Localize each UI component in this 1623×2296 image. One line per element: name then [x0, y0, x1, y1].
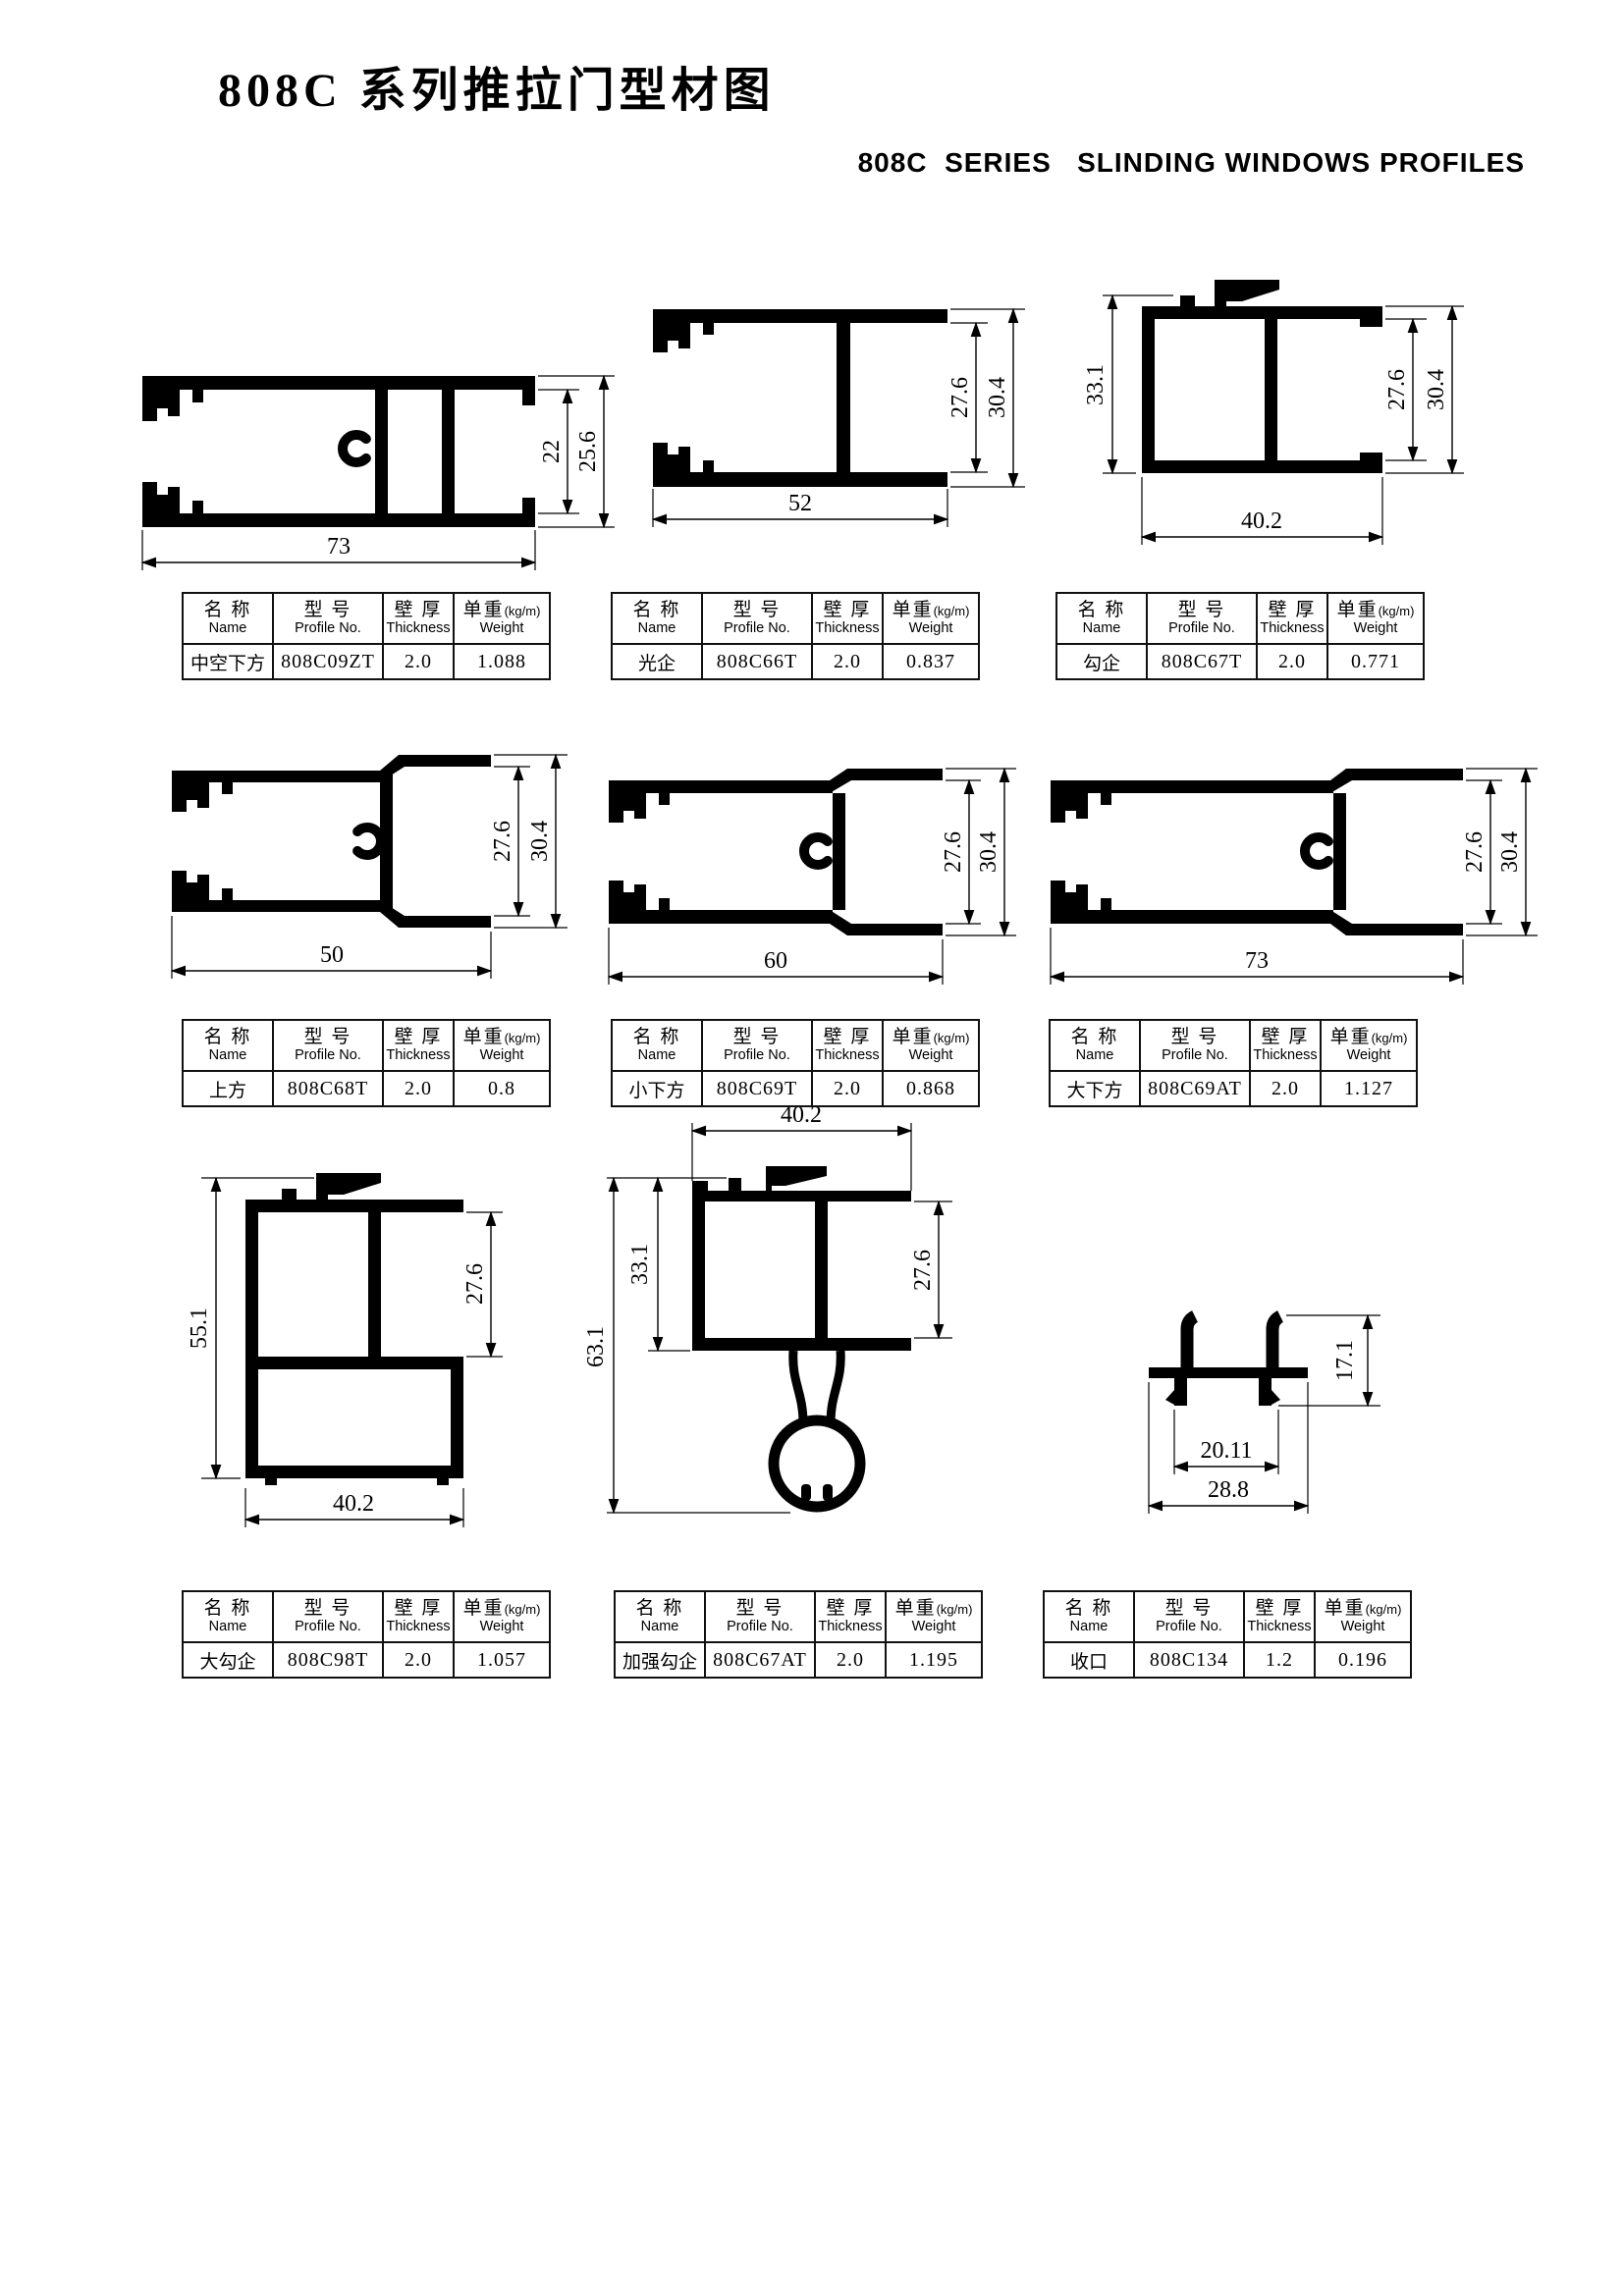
dim-width: 73 — [1245, 948, 1269, 974]
stem-wall-left — [793, 1351, 803, 1423]
header-weight: 单重(kg/m)Weight — [454, 1020, 550, 1071]
header-thickness: 壁 厚Thickness — [1257, 593, 1327, 644]
cell-name: 光企 — [612, 644, 702, 679]
dim-inner-height: 22 — [539, 440, 565, 463]
table-header-row: 名 称Name 型 号Profile No. 壁 厚Thickness 单重(k… — [1056, 593, 1424, 644]
cell-weight: 1.057 — [454, 1642, 550, 1678]
spec-table-808C67T: 名 称Name 型 号Profile No. 壁 厚Thickness 单重(k… — [1055, 592, 1425, 680]
header-name: 名 称Name — [615, 1591, 705, 1642]
header-thickness: 壁 厚Thickness — [383, 1591, 454, 1642]
header-name: 名 称Name — [183, 1591, 273, 1642]
header-name: 名 称Name — [612, 593, 702, 644]
profile-drawing-808C69AT: 73 27.6 30.4 — [1031, 741, 1600, 1036]
spec-table-808C68T: 名 称Name 型 号Profile No. 壁 厚Thickness 单重(k… — [182, 1019, 551, 1107]
header-weight: 单重(kg/m)Weight — [454, 1591, 550, 1642]
cell-model: 808C66T — [702, 644, 812, 679]
page-title: 808C 系列推拉门型材图 — [218, 51, 776, 120]
profile-shape — [1149, 1367, 1308, 1406]
stem-wall-right — [831, 1351, 840, 1423]
table-header-row: 名 称Name 型 号Profile No. 壁 厚Thickness 单重(k… — [183, 1591, 550, 1642]
dim-width: 60 — [764, 948, 787, 974]
dim-left-outer-height: 63.1 — [583, 1326, 609, 1367]
dim-inner-height: 27.6 — [1384, 369, 1410, 410]
table-value-row: 大勾企 808C98T 2.0 1.057 — [183, 1642, 550, 1678]
cell-thickness: 2.0 — [812, 644, 883, 679]
dim-outer-height: 30.4 — [1424, 369, 1449, 410]
dim-width: 50 — [320, 942, 344, 968]
header-model-en: Profile No. — [295, 620, 361, 636]
table-value-row: 中空下方 808C09ZT 2.0 1.088 — [183, 644, 550, 679]
header-model: 型 号Profile No. — [273, 593, 383, 644]
dim-left-height: 33.1 — [1083, 364, 1109, 405]
cell-weight: 0.771 — [1327, 644, 1424, 679]
header-model: 型 号Profile No. — [273, 1020, 383, 1071]
cell-model: 808C69AT — [1140, 1071, 1250, 1106]
header-weight: 单重(kg/m)Weight — [1321, 1020, 1417, 1071]
header-name: 名 称Name — [183, 593, 273, 644]
dim-right-height: 17.1 — [1332, 1340, 1358, 1381]
dim-inner-height: 27.6 — [947, 377, 973, 418]
cell-name: 中空下方 — [183, 644, 273, 679]
dim-inner-height: 27.6 — [462, 1263, 488, 1305]
header-model-cn: 型 号 — [304, 600, 352, 620]
header-thickness-cn: 壁 厚 — [395, 600, 443, 620]
table-value-row: 勾企 808C67T 2.0 0.771 — [1056, 644, 1424, 679]
header-weight: 单重(kg/m)Weight — [886, 1591, 982, 1642]
header-model: 型 号Profile No. — [273, 1591, 383, 1642]
dim-width: 73 — [327, 534, 351, 560]
header-weight: 单重(kg/m)Weight — [883, 1020, 979, 1071]
dim-outer-height: 30.4 — [1497, 831, 1523, 873]
profile-shape — [653, 309, 947, 487]
header-model: 型 号Profile No. — [1140, 1020, 1250, 1071]
header-name: 名 称Name — [183, 1020, 273, 1071]
header-model: 型 号Profile No. — [702, 1020, 812, 1071]
header-thickness: 壁 厚Thickness — [812, 1020, 883, 1071]
profile-drawing-808C69T: 60 27.6 30.4 — [584, 741, 1075, 1036]
cell-weight: 1.127 — [1321, 1071, 1417, 1106]
screw-boss — [1305, 837, 1328, 865]
header-weight: 单重(kg/m)Weight — [883, 593, 979, 644]
header-weight: 单重(kg/m)Weight — [1315, 1591, 1411, 1642]
profile-drawing-808C98T: 55.1 27.6 40.2 — [167, 1139, 599, 1571]
cell-weight: 0.8 — [454, 1071, 550, 1106]
header-weight-unit: (kg/m) — [505, 604, 541, 618]
header-name: 名 称Name — [612, 1020, 702, 1071]
profile-shape — [692, 1166, 911, 1351]
dim-left-inner-height: 33.1 — [627, 1244, 653, 1285]
header-weight: 单重(kg/m)Weight — [454, 593, 550, 644]
cell-name: 大下方 — [1050, 1071, 1140, 1106]
table-header-row: 名 称Name 型 号Profile No. 壁 厚Thickness 单重(k… — [183, 593, 550, 644]
cell-model: 808C134 — [1134, 1642, 1244, 1678]
dimensions: 60 27.6 30.4 — [609, 769, 1016, 985]
header-thickness: 壁 厚Thickness — [383, 593, 454, 644]
profile-drawing-808C67T: 33.1 27.6 30.4 40.2 — [1065, 250, 1527, 589]
table-value-row: 上方 808C68T 2.0 0.8 — [183, 1071, 550, 1106]
cell-model: 808C98T — [273, 1642, 383, 1678]
dim-outer-height: 30.4 — [976, 831, 1001, 873]
dim-width: 40.2 — [1241, 508, 1282, 534]
cell-name: 收口 — [1044, 1642, 1134, 1678]
dim-outer-height: 30.4 — [985, 377, 1010, 418]
dim-left-height: 55.1 — [187, 1308, 212, 1349]
header-name: 名 称Name — [1044, 1591, 1134, 1642]
cell-weight: 1.195 — [886, 1642, 982, 1678]
header-model: 型 号Profile No. — [705, 1591, 815, 1642]
cell-weight: 0.196 — [1315, 1642, 1411, 1678]
cell-name: 小下方 — [612, 1071, 702, 1106]
table-value-row: 光企 808C66T 2.0 0.837 — [612, 644, 979, 679]
header-thickness: 壁 厚Thickness — [812, 593, 883, 644]
table-header-row: 名 称Name 型 号Profile No. 壁 厚Thickness 单重(k… — [183, 1020, 550, 1071]
table-value-row: 大下方 808C69AT 2.0 1.127 — [1050, 1071, 1417, 1106]
cell-name: 上方 — [183, 1071, 273, 1106]
table-value-row: 收口 808C134 1.2 0.196 — [1044, 1642, 1411, 1678]
dim-inner-width: 20.11 — [1200, 1438, 1252, 1464]
page-subtitle: 808C SERIES SLINDING WINDOWS PROFILES — [858, 147, 1525, 179]
table-header-row: 名 称Name 型 号Profile No. 壁 厚Thickness 单重(k… — [1044, 1591, 1411, 1642]
spec-table-808C09ZT: 名 称Name 型 号Profile No. 壁 厚Thickness 单重(k… — [182, 592, 551, 680]
cell-model: 808C69T — [702, 1071, 812, 1106]
spec-table-808C98T: 名 称Name 型 号Profile No. 壁 厚Thickness 单重(k… — [182, 1590, 551, 1679]
cell-weight: 1.088 — [454, 644, 550, 679]
dim-inner-height: 27.6 — [910, 1250, 936, 1291]
cell-thickness: 2.0 — [1257, 644, 1327, 679]
header-name-cn: 名 称 — [204, 600, 252, 620]
header-name: 名 称Name — [1056, 593, 1147, 644]
cell-name: 勾企 — [1056, 644, 1147, 679]
cell-weight: 0.837 — [883, 644, 979, 679]
cell-thickness: 1.2 — [1244, 1642, 1315, 1678]
cell-thickness: 2.0 — [812, 1071, 883, 1106]
up-leg-left — [1187, 1316, 1195, 1372]
up-leg-right — [1272, 1316, 1280, 1372]
cell-weight: 0.868 — [883, 1071, 979, 1106]
dim-outer-width: 28.8 — [1208, 1477, 1249, 1503]
spec-table-808C66T: 名 称Name 型 号Profile No. 壁 厚Thickness 单重(k… — [611, 592, 980, 680]
header-model: 型 号Profile No. — [702, 593, 812, 644]
table-value-row: 加强勾企 808C67AT 2.0 1.195 — [615, 1642, 982, 1678]
table-header-row: 名 称Name 型 号Profile No. 壁 厚Thickness 单重(k… — [615, 1591, 982, 1642]
table-value-row: 小下方 808C69T 2.0 0.868 — [612, 1071, 979, 1106]
dimensions: 73 27.6 30.4 — [1051, 769, 1538, 985]
header-thickness: 壁 厚Thickness — [383, 1020, 454, 1071]
profile-shape — [172, 755, 491, 928]
dim-inner-height: 27.6 — [941, 831, 966, 873]
spec-table-808C134: 名 称Name 型 号Profile No. 壁 厚Thickness 单重(k… — [1043, 1590, 1412, 1679]
header-thickness-en: Thickness — [386, 620, 450, 636]
header-thickness: 壁 厚Thickness — [1244, 1591, 1315, 1642]
spec-table-808C69T: 名 称Name 型 号Profile No. 壁 厚Thickness 单重(k… — [611, 1019, 980, 1107]
profile-shape — [1051, 769, 1463, 935]
profile-drawing-808C134: 17.1 20.11 28.8 — [1109, 1266, 1522, 1580]
profile-shape — [245, 1173, 463, 1485]
cell-model: 808C68T — [273, 1071, 383, 1106]
dim-width: 52 — [788, 491, 812, 516]
spec-table-808C69AT: 名 称Name 型 号Profile No. 壁 厚Thickness 单重(k… — [1049, 1019, 1418, 1107]
dim-outer-height: 30.4 — [527, 821, 553, 862]
profile-drawing-808C09ZT: 73 22 25.6 — [118, 339, 648, 594]
cell-thickness: 2.0 — [1250, 1071, 1321, 1106]
cell-thickness: 2.0 — [815, 1642, 886, 1678]
table-header-row: 名 称Name 型 号Profile No. 壁 厚Thickness 单重(k… — [612, 593, 979, 644]
cell-name: 加强勾企 — [615, 1642, 705, 1678]
screw-boss — [343, 435, 366, 462]
cell-model: 808C09ZT — [273, 644, 383, 679]
header-name-en: Name — [209, 620, 247, 636]
profile-drawing-808C66T: 52 27.6 30.4 — [628, 260, 1100, 584]
profile-shape — [1142, 280, 1382, 473]
cell-model: 808C67AT — [705, 1642, 815, 1678]
header-thickness: 壁 厚Thickness — [815, 1591, 886, 1642]
cell-thickness: 2.0 — [383, 644, 454, 679]
header-model: 型 号Profile No. — [1147, 593, 1257, 644]
cell-model: 808C67T — [1147, 644, 1257, 679]
cell-thickness: 2.0 — [383, 1642, 454, 1678]
bulb-nubs — [801, 1484, 833, 1501]
header-name: 名 称Name — [1050, 1020, 1140, 1071]
table-header-row: 名 称Name 型 号Profile No. 壁 厚Thickness 单重(k… — [1050, 1020, 1417, 1071]
header-weight-en: Weight — [480, 620, 524, 636]
header-model: 型 号Profile No. — [1134, 1591, 1244, 1642]
dim-width: 40.2 — [333, 1491, 374, 1517]
screw-boss — [804, 837, 828, 865]
spec-table-808C67AT: 名 称Name 型 号Profile No. 壁 厚Thickness 单重(k… — [614, 1590, 983, 1679]
header-weight-cn: 单重 — [463, 600, 505, 620]
profile-drawing-808C68T: 50 27.6 30.4 — [147, 741, 609, 1036]
dim-outer-height: 25.6 — [575, 431, 601, 472]
dim-inner-height: 27.6 — [490, 821, 515, 862]
bulb — [774, 1420, 860, 1507]
header-thickness: 壁 厚Thickness — [1250, 1020, 1321, 1071]
header-weight: 单重(kg/m)Weight — [1327, 593, 1424, 644]
profile-shape — [609, 769, 943, 935]
cell-thickness: 2.0 — [383, 1071, 454, 1106]
dim-inner-height: 27.6 — [1462, 831, 1488, 873]
cell-name: 大勾企 — [183, 1642, 273, 1678]
screw-boss — [357, 828, 381, 855]
profile-drawing-808C67AT: 40.2 63.1 33.1 27.6 — [579, 1090, 1041, 1585]
dimensions: 40.2 63.1 33.1 27.6 — [583, 1102, 952, 1513]
table-header-row: 名 称Name 型 号Profile No. 壁 厚Thickness 单重(k… — [612, 1020, 979, 1071]
